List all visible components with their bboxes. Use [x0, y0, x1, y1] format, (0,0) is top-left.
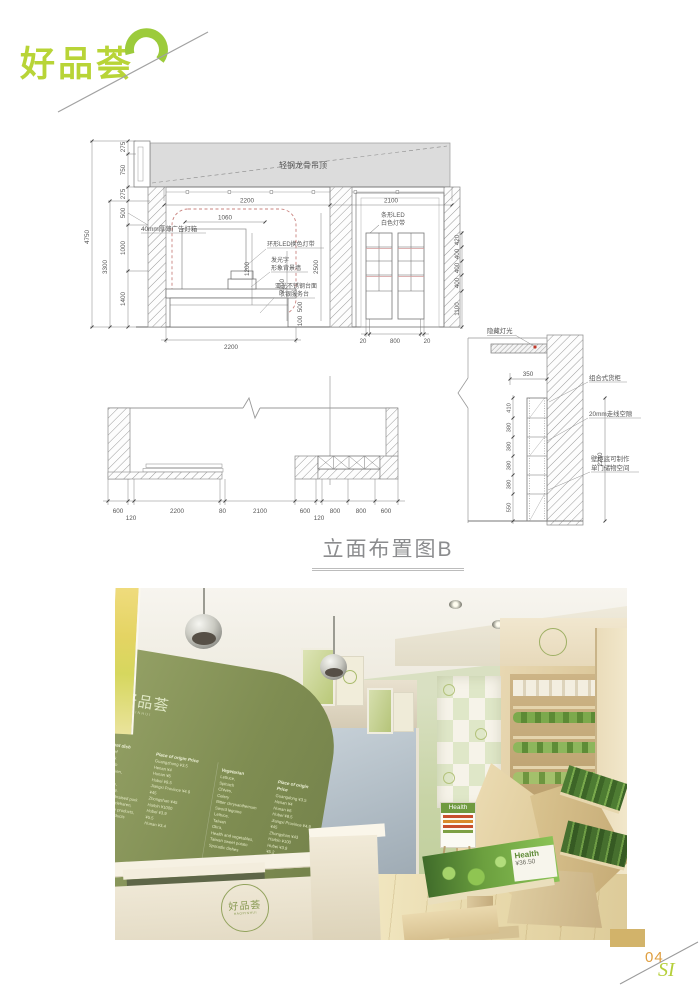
- veggie-icon: [443, 684, 455, 696]
- dim-lightbox-w: 1060: [218, 215, 233, 222]
- easel-text-bar: [443, 820, 473, 823]
- easel-text-bar: [443, 830, 473, 833]
- menu-col-veg: Vegetarian Lettuce, Spinach Chives, Cele…: [208, 767, 276, 859]
- lamp-cord: [333, 616, 335, 656]
- plan-dim-2100: 2100: [253, 508, 268, 515]
- dim-shelf-400c: 400: [454, 277, 461, 288]
- detail-linework: [458, 335, 641, 525]
- interior-render-photo: 好品荟 HAOPINHUI Meat dish Beef Pork Lamb C…: [115, 588, 627, 940]
- artwork-panel: [393, 692, 414, 732]
- pendant-lamp-shade: [192, 632, 216, 645]
- plan-drawing: 600 120 2200 80 2100 600 120 800 800 600: [85, 373, 430, 538]
- lightbox-label: 40mm厚薄广告灯箱: [141, 224, 198, 233]
- hidden-light-label: 隐藏灯光: [487, 326, 513, 335]
- easel-text-bar: [443, 825, 473, 828]
- design-document-page: 好品荟: [0, 0, 700, 989]
- dim-top-2: 2100: [384, 198, 399, 205]
- logo-arc-icon: [129, 33, 163, 60]
- pendant-lamp-shade: [325, 668, 343, 677]
- dim-lightbox-h: 1200: [244, 262, 251, 277]
- lamp-cord: [203, 588, 205, 616]
- plan-dim-120b: 120: [314, 515, 325, 522]
- detail-dim-410: 410: [507, 403, 513, 413]
- dim-seg-275b: 275: [120, 188, 127, 199]
- dim-seg-1400: 1400: [120, 292, 127, 307]
- plan-dim-2200: 2200: [170, 508, 185, 515]
- menu-col-origin: Place of origin Price Guangzhong ¥3.5 He…: [144, 751, 216, 837]
- detail-dim-350: 350: [523, 371, 534, 378]
- plan-dim-80: 80: [219, 508, 227, 515]
- elevation-drawing: 轻钢龙骨吊顶 2200 2100 1060 1200 2500 2200 500…: [78, 121, 473, 356]
- dim-shelf-20a: 20: [360, 339, 367, 345]
- detail-dim-380c: 380: [507, 461, 513, 471]
- detail-dim-380d: 380: [507, 480, 513, 490]
- dim-seg-750: 750: [120, 164, 127, 175]
- counter-label-2: 收银服务台: [279, 290, 309, 298]
- easel-poster: Health: [440, 802, 476, 848]
- dim-shelf-800: 800: [390, 339, 401, 345]
- detail-dim-550: 550: [507, 503, 513, 513]
- dim-counter-2: 100: [297, 315, 304, 326]
- detail-dim-380a: 380: [507, 423, 513, 433]
- cabinet-label: 组合式货柜: [589, 373, 622, 382]
- dim-counter-1: 500: [297, 301, 304, 312]
- cabinet-logo-icon: [539, 628, 567, 656]
- dim-door-h: 2500: [313, 260, 320, 275]
- plan-dim-800b: 800: [356, 508, 367, 515]
- easel-text-bar: [443, 815, 473, 818]
- counter-label-1: 亚光不锈钢台面: [275, 282, 317, 290]
- page-code: SI: [658, 959, 675, 982]
- luminous-label-2: 形象背景墙: [271, 264, 301, 272]
- easel-header: Health: [441, 803, 475, 813]
- dim-seg-500: 500: [120, 207, 127, 218]
- plan-dim-800a: 800: [330, 508, 341, 515]
- brand-logo-swoosh: [30, 20, 220, 120]
- plan-dim-600a: 600: [113, 508, 124, 515]
- ceiling-label: 轻钢龙骨吊顶: [279, 160, 327, 170]
- drawing-title: 立面布置图B: [312, 533, 464, 571]
- dim-seg-275a: 275: [120, 141, 127, 152]
- artwork-panel: [367, 688, 393, 734]
- menu-items: Lettuce, Spinach Chives, Celery Bitter c…: [208, 774, 275, 858]
- detail-dim-380b: 380: [507, 442, 513, 452]
- veggie-icon: [443, 772, 455, 784]
- dim-shelf-1100: 1100: [454, 302, 461, 316]
- counter-logo-text: 好品荟: [221, 895, 268, 913]
- dim-top-1: 2200: [240, 198, 255, 205]
- dim-bottom-w: 2200: [224, 344, 239, 351]
- plan-dim-600b: 600: [300, 508, 311, 515]
- dim-seg-1000: 1000: [120, 241, 127, 256]
- strip-led-label-2: 白色灯带: [381, 219, 405, 227]
- recessed-light-icon: [449, 600, 462, 609]
- counter-raised-unit: [309, 835, 381, 940]
- wiring-label: 20mm走线空隙: [589, 409, 633, 418]
- dim-upper-h: 3300: [102, 260, 109, 275]
- dim-shelf-20b: 20: [424, 339, 431, 345]
- detail-drawing: 隐藏灯光 350 组合式货柜 20mm走线空隙 壁柜底可制作 单门储物空间 41…: [455, 323, 700, 543]
- plan-dim-600c: 600: [381, 508, 392, 515]
- luminous-label-1: 发光字: [271, 256, 289, 264]
- dim-shelf-400a: 400: [454, 248, 461, 259]
- ring-led-label: 环形LED换色灯带: [267, 240, 315, 248]
- plan-linework: [103, 376, 405, 505]
- table-price-sign: Health ¥36.50: [511, 845, 558, 882]
- veggie-icon: [475, 728, 487, 740]
- strip-led-label-1: 条形LED: [381, 211, 405, 219]
- dim-overall-h: 4750: [84, 230, 91, 245]
- menu-items: Guangzhong ¥3.5 Henan ¥4 Hunan ¥6 Hubei …: [144, 759, 215, 837]
- dim-shelf-420: 420: [454, 234, 461, 245]
- plan-dim-120a: 120: [126, 515, 137, 522]
- dim-shelf-400b: 400: [454, 262, 461, 273]
- counter-logo-sub: HAOPINHUI: [233, 911, 258, 916]
- detail-dim-2210: 2210: [597, 452, 604, 467]
